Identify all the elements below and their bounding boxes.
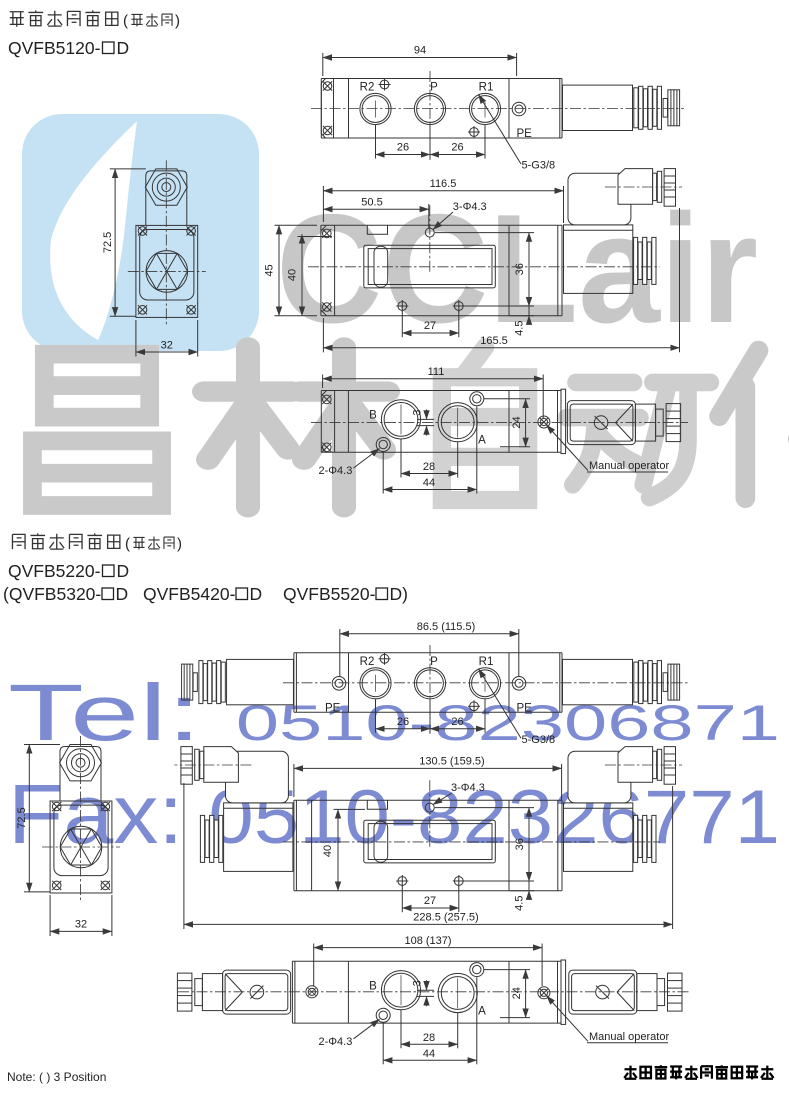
svg-text:(: ( bbox=[125, 536, 130, 553]
svg-text:130.5 (159.5): 130.5 (159.5) bbox=[419, 756, 484, 768]
svg-text:D: D bbox=[116, 584, 129, 604]
svg-text:QVFB5520-: QVFB5520- bbox=[283, 584, 376, 604]
svg-text:228.5 (257.5): 228.5 (257.5) bbox=[413, 912, 478, 924]
svg-text:D): D) bbox=[390, 584, 408, 604]
svg-text:PE: PE bbox=[325, 703, 341, 715]
svg-text:40: 40 bbox=[322, 845, 334, 857]
svg-text:(QVFB5320-: (QVFB5320- bbox=[3, 584, 101, 604]
svg-text:QVFB5220-: QVFB5220- bbox=[8, 561, 101, 581]
svg-text:QVFB5120-: QVFB5120- bbox=[8, 38, 101, 58]
svg-text:32: 32 bbox=[75, 919, 87, 931]
svg-text:D: D bbox=[250, 584, 263, 604]
svg-text:): ) bbox=[175, 13, 180, 30]
svg-text:Note: ( ) 3 Position: Note: ( ) 3 Position bbox=[7, 1070, 106, 1084]
svg-text:32: 32 bbox=[161, 340, 173, 352]
svg-text:86.5 (115.5): 86.5 (115.5) bbox=[417, 621, 476, 633]
svg-text:94: 94 bbox=[414, 45, 426, 57]
svg-text:50.5: 50.5 bbox=[361, 197, 382, 209]
svg-text:3-Φ4.3: 3-Φ4.3 bbox=[451, 782, 485, 794]
svg-text:(: ( bbox=[123, 13, 128, 30]
svg-text:D: D bbox=[117, 561, 130, 581]
svg-text:111: 111 bbox=[428, 366, 445, 378]
svg-text:116.5: 116.5 bbox=[430, 178, 457, 190]
svg-text:40: 40 bbox=[287, 269, 299, 281]
svg-text:QVFB5420-: QVFB5420- bbox=[143, 584, 236, 604]
svg-text:165.5: 165.5 bbox=[480, 335, 508, 347]
svg-text:3-Φ4.3: 3-Φ4.3 bbox=[453, 201, 487, 213]
svg-text:108 (137): 108 (137) bbox=[404, 935, 451, 947]
svg-text:D: D bbox=[117, 38, 130, 58]
svg-text:45: 45 bbox=[264, 264, 276, 276]
svg-text:): ) bbox=[177, 536, 182, 553]
